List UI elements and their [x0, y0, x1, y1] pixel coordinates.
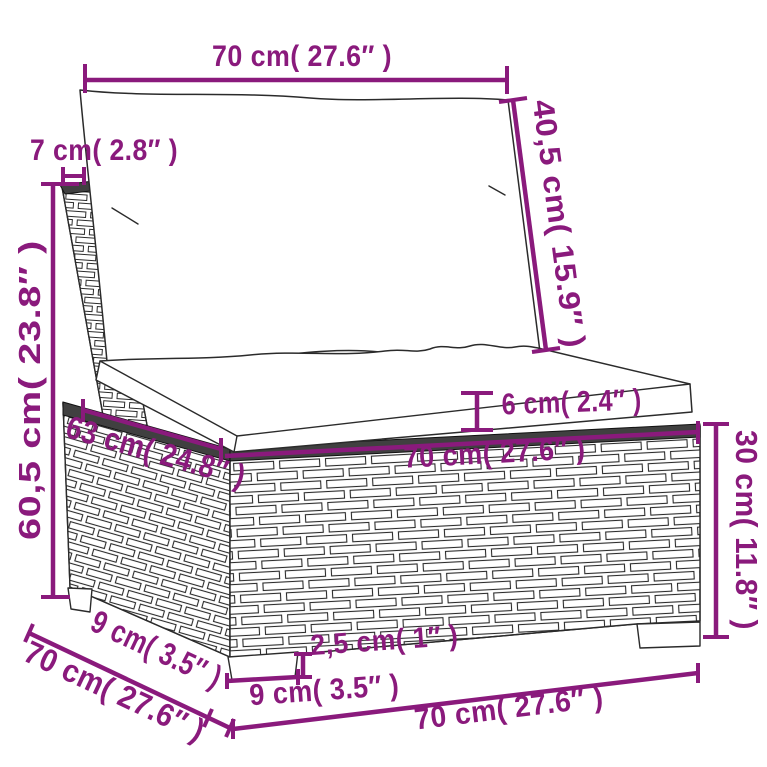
- dim-base-height-label: 30 cm( 11.8″ ): [729, 430, 764, 630]
- dimension-diagram: 70 cm( 27.6″ ) 7 cm( 2.8″ ) 40,5 cm( 15.…: [0, 0, 767, 767]
- dim-seat-cushion-thickness-label: 6 cm( 2.4″ ): [501, 384, 642, 422]
- dim-back-width-label: 70 cm( 27.6″ ): [212, 40, 392, 73]
- dim-back-width: 70 cm( 27.6″ ): [85, 40, 507, 94]
- dim-total-width-label: 70 cm( 27.6″ ): [413, 681, 606, 737]
- foot-back-left: [68, 588, 92, 612]
- foot-right: [637, 622, 700, 648]
- dim-back-thickness-label: 7 cm( 2.8″ ): [30, 134, 178, 167]
- back-cushion: [80, 90, 540, 373]
- sofa-dimension-drawing: 70 cm( 27.6″ ) 7 cm( 2.8″ ) 40,5 cm( 15.…: [0, 0, 767, 767]
- dim-base-height: 30 cm( 11.8″ ): [703, 424, 764, 637]
- dim-back-height-label: 60,5 cm( 23.8″ ): [12, 240, 47, 540]
